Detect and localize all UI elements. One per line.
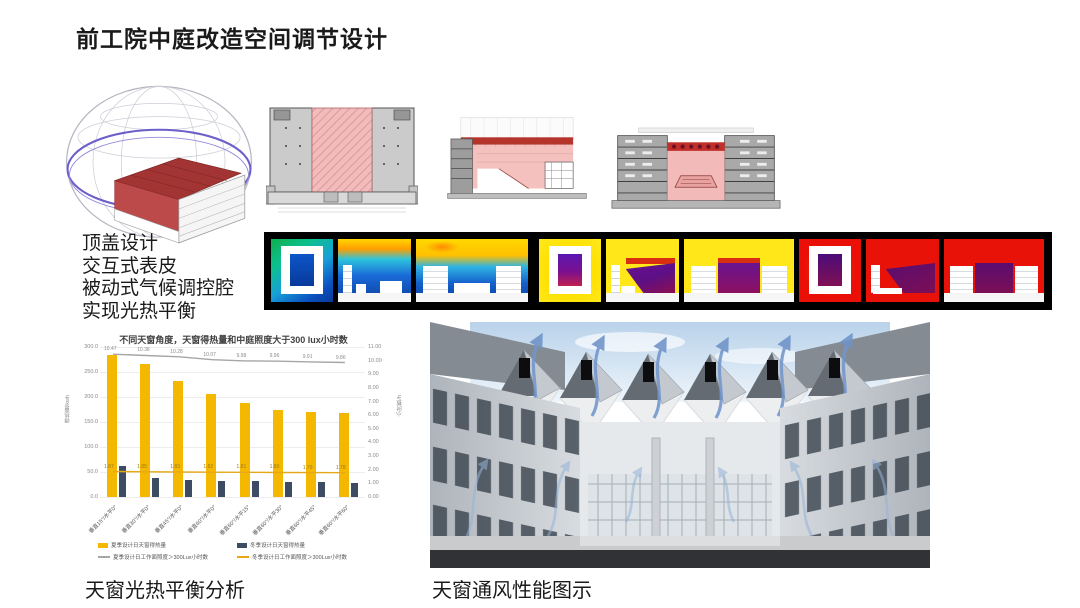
left-axis-tick: 300.0: [72, 344, 98, 350]
building-elevation: [950, 266, 973, 293]
column: [652, 438, 660, 538]
legend-label: 夏季设计日天窗得热量: [111, 541, 166, 549]
right-axis-tick: 0.00: [368, 494, 394, 500]
ground-plane: [338, 293, 411, 302]
skylight-ventilation-render: [430, 322, 930, 568]
building-section: [343, 265, 352, 293]
line-point-label: 9.91: [303, 354, 313, 360]
courtyard-zone: [290, 254, 314, 286]
chart-legend: 夏季设计日天窗得热量冬季设计日天窗得热量夏季设计日工作面照度＞300Lux小时数…: [98, 541, 370, 561]
thermal-panel-cool-section: [338, 239, 411, 302]
longitudinal-section-diagram: [446, 104, 588, 216]
right-axis-tick: 7.00: [368, 399, 394, 405]
atrium-section-zone: [667, 145, 724, 200]
legend-item: 冬季设计日天窗得热量: [237, 541, 370, 549]
left-axis-tick: 0.0: [72, 494, 98, 500]
line-point-label: 10.07: [203, 352, 216, 358]
column: [706, 438, 714, 538]
thermal-analysis-strip: [264, 232, 1052, 310]
atrium-zone: [312, 108, 372, 192]
right-axis-tick: 5.00: [368, 426, 394, 432]
note-line: 被动式气候调控腔: [82, 278, 234, 301]
building-elevation: [762, 266, 787, 293]
chart-gridline: [100, 497, 365, 498]
legend-item: 夏季设计日工作面照度＞300Lux小时数: [98, 553, 231, 561]
notes-block: 顶盖设计 交互式表皮 被动式气候调控腔 实现光热平衡: [82, 233, 234, 323]
left-axis-tick: 50.0: [72, 469, 98, 475]
legend-swatch: [98, 556, 110, 558]
cross-section-diagram: [610, 126, 782, 214]
line-point-label: 1.85: [137, 464, 147, 470]
thermal-panel-warm-elevation: [684, 239, 794, 302]
ground-plane: [684, 293, 794, 302]
right-axis-tick: 4.00: [368, 439, 394, 445]
line-point-label: 1.78: [336, 465, 346, 471]
note-line: 顶盖设计: [82, 233, 234, 256]
courtyard-zone: [818, 254, 842, 286]
slide: 前工院中庭改造空间调节设计: [0, 0, 1080, 608]
line-point-label: 1.81: [237, 464, 247, 470]
right-axis-tick: 3.00: [368, 453, 394, 459]
atrium-thermal-zone: [718, 263, 760, 293]
right-axis-tick: 10.00: [368, 358, 394, 364]
thermal-panel-hot-plan: [799, 239, 861, 302]
dome-canopy-axonometric-diagram: [60, 74, 258, 244]
line-point-label: 1.79: [303, 465, 313, 471]
right-axis-tick: 1.00: [368, 480, 394, 486]
building-axon: [60, 75, 245, 243]
line-point-label: 1.83: [170, 464, 180, 470]
building-elevation: [691, 266, 716, 293]
note-line: 实现光热平衡: [82, 301, 234, 324]
building-elevation: [496, 266, 522, 293]
chart-title: 不同天窗角度，天窗得热量和中庭照度大于300 lux小时数: [60, 333, 407, 346]
atrium-plan-diagram: [266, 98, 418, 220]
courtyard-zone: [558, 254, 582, 286]
ground-plane: [606, 293, 679, 302]
note-line: 交互式表皮: [82, 256, 234, 279]
chart-plot-area: 10.4710.3810.2810.079.989.969.919.861.87…: [100, 347, 365, 498]
legend-swatch: [98, 543, 108, 548]
thermal-panel-hot-section: [866, 239, 939, 302]
left-axis-tick: 100.0: [72, 444, 98, 450]
right-axis-tick: 8.00: [368, 385, 394, 391]
atrium-thermal-zone: [975, 263, 1013, 293]
ground-plane: [944, 293, 1044, 302]
thermal-panel-cool-elevation: [416, 239, 528, 302]
left-axis-tick: 250.0: [72, 369, 98, 375]
ground-plane: [416, 293, 528, 302]
thermal-panel-cool-plan: [271, 239, 333, 302]
line-point-label: 10.38: [137, 347, 150, 353]
line-point-label: 9.96: [270, 353, 280, 359]
legend-label: 夏季设计日工作面照度＞300Lux小时数: [113, 553, 208, 561]
right-axis-tick: 6.00: [368, 412, 394, 418]
building-elevation: [1015, 266, 1038, 293]
right-axis-tick: 11.00: [368, 344, 394, 350]
auditorium: [675, 176, 717, 187]
left-axis-tick: 200.0: [72, 394, 98, 400]
line-point-label: 1.87: [104, 464, 114, 470]
thermal-panel-warm-plan: [539, 239, 601, 302]
legend-item: 冬季设计日工作面照度＞300Lux小时数: [237, 553, 370, 561]
render-caption: 天窗通风性能图示: [432, 574, 592, 603]
line-point-label: 1.80: [270, 464, 280, 470]
left-axis-title: 得热量/kwh: [64, 395, 72, 423]
chart-caption: 天窗光热平衡分析: [85, 574, 245, 603]
line-point-label: 9.86: [336, 355, 346, 361]
left-axis-tick: 150.0: [72, 419, 98, 425]
line-point-label: 1.82: [203, 464, 213, 470]
legend-label: 冬季设计日工作面照度＞300Lux小时数: [252, 553, 347, 561]
right-axis-tick: 9.00: [368, 371, 394, 377]
right-axis-title: 小时数/h: [396, 395, 404, 416]
line-point-label: 10.47: [104, 346, 117, 352]
page-title: 前工院中庭改造空间调节设计: [76, 20, 388, 54]
legend-swatch: [237, 556, 249, 558]
thermal-panel-warm-section: [606, 239, 679, 302]
floor-edge-band: [430, 550, 930, 568]
building-elevation: [423, 266, 449, 293]
line-point-label: 9.98: [237, 353, 247, 359]
right-axis-tick: 2.00: [368, 467, 394, 473]
building-section: [611, 265, 620, 293]
skylight-band: [461, 137, 573, 144]
chart-line-layer: [100, 347, 365, 497]
line-point-label: 10.28: [170, 349, 183, 355]
thermal-panel-hot-elevation: [944, 239, 1044, 302]
skylight-balance-chart: 不同天窗角度，天窗得热量和中庭照度大于300 lux小时数 得热量/kwh 小时…: [60, 333, 407, 573]
